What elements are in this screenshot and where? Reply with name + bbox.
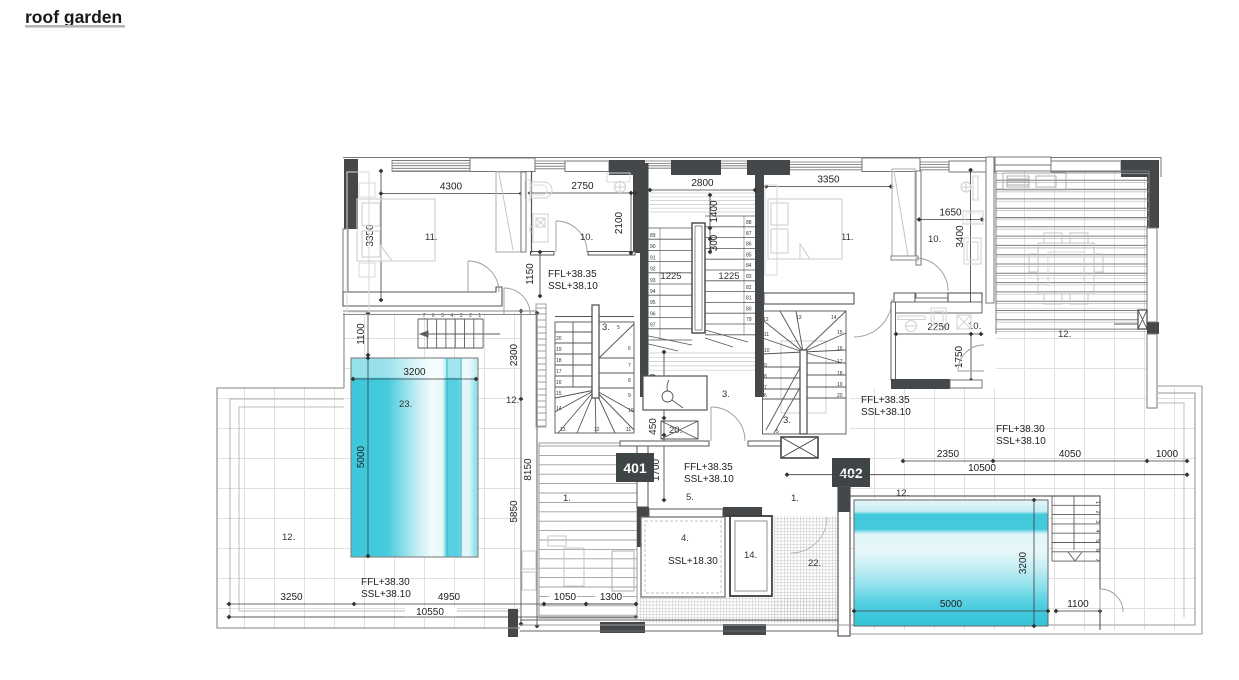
svg-text:FFL+38.35: FFL+38.35 [684,462,733,473]
svg-text:10.: 10. [968,321,981,332]
svg-text:17: 17 [837,359,843,365]
svg-text:96: 96 [650,311,656,317]
svg-text:1650: 1650 [939,208,962,219]
svg-text:roof garden: roof garden [25,7,122,27]
svg-text:3350: 3350 [817,175,840,186]
svg-text:4.: 4. [681,533,689,544]
svg-text:91: 91 [650,255,656,261]
svg-text:12: 12 [594,427,600,433]
svg-text:89: 89 [650,233,656,239]
svg-text:1050: 1050 [554,592,577,603]
svg-text:FFL+38.35: FFL+38.35 [548,269,597,280]
svg-text:94: 94 [650,289,656,295]
svg-text:4: 4 [451,313,454,319]
svg-text:8: 8 [628,378,631,384]
svg-text:401: 401 [623,460,647,476]
svg-text:82: 82 [746,285,752,291]
svg-text:SSL+18.30: SSL+18.30 [668,556,718,567]
svg-text:3200: 3200 [403,367,426,378]
svg-text:83: 83 [746,274,752,280]
svg-text:80: 80 [746,306,752,312]
svg-text:7: 7 [423,313,426,319]
svg-text:FFL+38.30: FFL+38.30 [996,424,1045,435]
svg-text:14: 14 [831,315,837,321]
svg-text:1400: 1400 [709,200,720,223]
svg-text:13: 13 [560,427,566,433]
svg-text:2100: 2100 [614,211,625,234]
svg-text:1750: 1750 [954,345,965,368]
svg-text:5850: 5850 [509,500,520,523]
svg-text:6: 6 [628,346,631,352]
svg-text:1100: 1100 [356,323,367,345]
svg-text:11: 11 [764,332,769,338]
svg-text:10500: 10500 [968,463,996,474]
svg-text:8: 8 [764,374,767,380]
svg-text:3.: 3. [602,322,610,333]
svg-text:SSL+38.10: SSL+38.10 [861,407,911,418]
svg-text:402: 402 [839,465,863,481]
svg-text:SSL+38.10: SSL+38.10 [996,436,1046,447]
svg-text:12: 12 [763,317,769,323]
svg-text:6: 6 [764,393,767,399]
svg-text:14.: 14. [744,550,757,561]
svg-text:5.: 5. [686,492,694,503]
svg-text:2800: 2800 [691,178,714,189]
svg-text:12.: 12. [282,532,295,543]
svg-text:4300: 4300 [440,182,463,193]
svg-text:13: 13 [796,315,802,321]
svg-text:300: 300 [709,234,720,251]
svg-text:1000: 1000 [1156,449,1179,460]
svg-text:6: 6 [432,313,435,319]
svg-text:FFL+38.30: FFL+38.30 [361,577,410,588]
svg-text:84: 84 [746,263,752,269]
svg-text:2300: 2300 [509,343,520,366]
svg-text:93: 93 [650,278,656,284]
svg-text:88: 88 [746,220,752,226]
svg-text:5000: 5000 [940,599,963,610]
svg-text:23.: 23. [399,399,412,410]
svg-text:2750: 2750 [571,181,594,192]
svg-text:FFL+38.35: FFL+38.35 [861,395,910,406]
svg-text:11.: 11. [841,232,854,243]
svg-text:7: 7 [628,363,631,369]
svg-text:95: 95 [650,300,656,306]
svg-text:11: 11 [626,427,631,433]
svg-text:3250: 3250 [280,592,303,603]
svg-text:12.: 12. [506,395,519,406]
svg-text:SSL+38.10: SSL+38.10 [684,474,734,485]
svg-text:2: 2 [469,313,472,319]
svg-text:9: 9 [764,363,767,369]
svg-text:1: 1 [478,313,481,319]
svg-text:16: 16 [556,380,562,386]
svg-text:90: 90 [650,244,656,250]
svg-text:1225: 1225 [660,271,681,282]
svg-text:15: 15 [837,330,843,336]
svg-text:1225: 1225 [718,271,739,282]
svg-text:18: 18 [556,358,562,364]
svg-text:8150: 8150 [523,458,534,481]
svg-text:9: 9 [628,393,631,399]
svg-text:10: 10 [764,348,770,354]
svg-text:86: 86 [746,242,752,248]
svg-text:SSL+38.10: SSL+38.10 [548,281,598,292]
svg-text:3: 3 [1094,520,1100,523]
svg-text:1150: 1150 [525,263,536,285]
svg-text:20: 20 [837,393,843,399]
svg-text:79: 79 [746,317,752,323]
svg-text:85: 85 [746,252,752,258]
svg-text:19: 19 [837,382,843,388]
svg-text:1: 1 [1094,501,1100,504]
svg-text:1.: 1. [791,493,799,504]
svg-text:10550: 10550 [416,607,444,618]
svg-text:4: 4 [1094,530,1100,533]
svg-text:7: 7 [1094,559,1100,562]
svg-text:6: 6 [1094,549,1100,552]
svg-text:4050: 4050 [1059,449,1082,460]
svg-text:10.: 10. [928,234,941,245]
svg-text:2: 2 [1094,511,1100,514]
svg-text:5: 5 [776,429,779,435]
svg-text:81: 81 [746,296,752,302]
svg-text:1300: 1300 [600,592,623,603]
svg-text:5000: 5000 [356,445,367,468]
svg-text:5: 5 [617,325,620,331]
svg-text:10: 10 [628,408,634,414]
svg-text:2350: 2350 [937,449,960,460]
svg-text:97: 97 [650,323,656,329]
svg-text:3200: 3200 [1018,551,1029,574]
svg-text:92: 92 [650,267,656,273]
svg-text:20: 20 [556,336,562,342]
svg-text:11.: 11. [425,232,438,243]
svg-text:3.: 3. [783,415,791,426]
svg-text:12.: 12. [1058,329,1071,340]
svg-text:10.: 10. [580,232,593,243]
svg-text:12.: 12. [896,488,909,499]
svg-text:4950: 4950 [438,592,461,603]
svg-text:22.: 22. [808,558,821,569]
svg-text:15: 15 [556,391,562,397]
svg-text:14: 14 [556,406,562,412]
svg-text:19: 19 [556,347,562,353]
svg-text:1.: 1. [563,493,571,504]
svg-text:3.: 3. [722,389,730,400]
svg-text:5: 5 [1094,539,1100,542]
svg-text:3350: 3350 [365,224,376,247]
svg-text:87: 87 [746,231,752,237]
svg-text:17: 17 [556,369,562,375]
svg-text:SSL+38.10: SSL+38.10 [361,589,411,600]
svg-text:1100: 1100 [1067,599,1089,610]
svg-text:3: 3 [460,313,463,319]
svg-text:16: 16 [837,346,843,352]
svg-text:5: 5 [441,313,444,319]
svg-text:20.: 20. [669,425,682,436]
svg-text:18: 18 [837,371,843,377]
svg-text:450: 450 [648,418,659,435]
svg-text:7: 7 [764,385,767,391]
